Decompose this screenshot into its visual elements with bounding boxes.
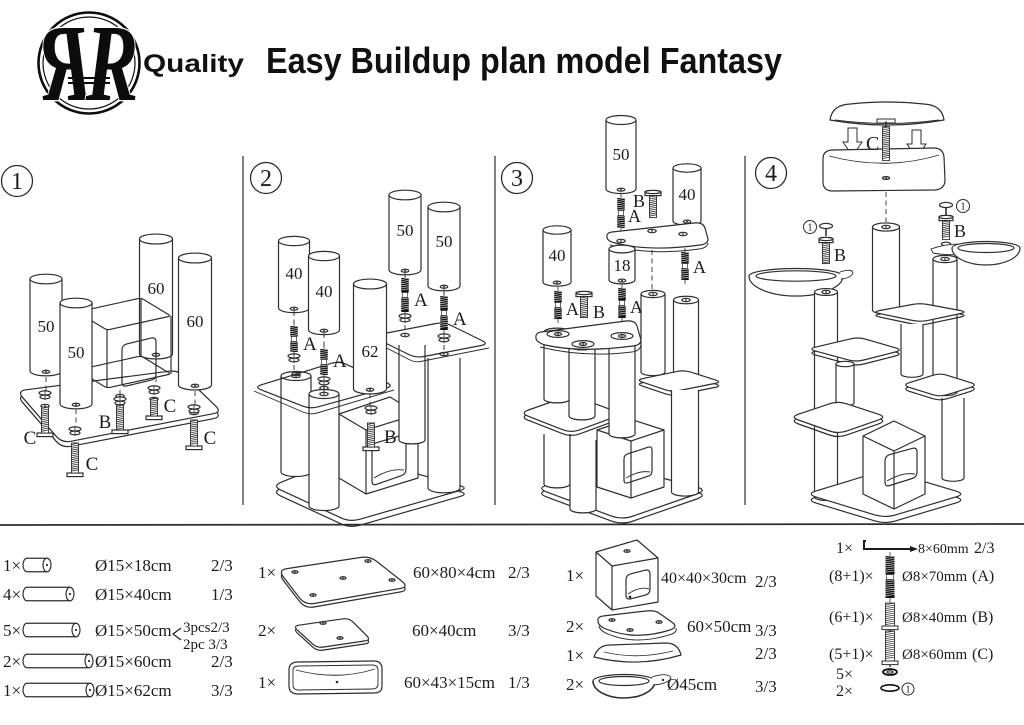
svg-text:C: C: [86, 454, 99, 475]
svg-text:60×80×4cm: 60×80×4cm: [413, 563, 495, 582]
svg-text:40: 40: [316, 282, 333, 301]
svg-text:A: A: [333, 351, 347, 372]
svg-text:5×: 5×: [836, 666, 853, 683]
svg-text:1×: 1×: [3, 556, 21, 575]
svg-text:60×50cm: 60×50cm: [687, 617, 751, 636]
svg-text:A: A: [693, 257, 706, 277]
svg-text:50: 50: [68, 343, 85, 362]
svg-text:B: B: [593, 302, 605, 322]
svg-text:2×: 2×: [258, 621, 276, 640]
svg-text:1: 1: [905, 685, 910, 696]
svg-text:2×: 2×: [566, 675, 584, 694]
svg-text:18: 18: [614, 256, 631, 275]
svg-text:3/3: 3/3: [508, 621, 530, 640]
svg-text:1: 1: [807, 223, 812, 234]
svg-text:60×40cm: 60×40cm: [412, 621, 476, 640]
svg-text:B: B: [954, 221, 966, 241]
svg-text:50: 50: [613, 145, 630, 164]
svg-text:(A): (A): [972, 568, 994, 585]
svg-text:Ø15×18cm: Ø15×18cm: [95, 556, 172, 575]
svg-text:60×43×15cm: 60×43×15cm: [404, 673, 495, 692]
svg-text:1/3: 1/3: [211, 585, 233, 604]
svg-text:60: 60: [148, 279, 165, 298]
svg-text:A: A: [414, 290, 428, 311]
svg-text:A: A: [303, 334, 317, 355]
svg-text:2/3: 2/3: [211, 556, 233, 575]
svg-text:1×: 1×: [3, 681, 21, 700]
svg-text:1: 1: [11, 169, 23, 195]
svg-text:A: A: [566, 299, 579, 319]
svg-text:Ø8×60mm: Ø8×60mm: [902, 647, 967, 663]
svg-text:2×: 2×: [566, 617, 584, 636]
svg-text:1: 1: [960, 202, 965, 213]
svg-text:3pcs2/3: 3pcs2/3: [183, 620, 230, 636]
svg-text:50: 50: [436, 232, 453, 251]
svg-text:1×: 1×: [258, 673, 276, 692]
svg-text:40×40×30cm: 40×40×30cm: [661, 570, 747, 587]
svg-text:4×: 4×: [3, 585, 21, 604]
svg-text:R: R: [85, 2, 139, 124]
svg-text:2/3: 2/3: [755, 644, 777, 663]
svg-text:2×: 2×: [3, 652, 21, 671]
svg-text:40: 40: [549, 246, 566, 265]
svg-text:4: 4: [765, 161, 777, 187]
svg-text:B: B: [834, 245, 846, 265]
svg-text:C: C: [204, 428, 217, 449]
svg-text:2pc 3/3: 2pc 3/3: [183, 637, 228, 653]
svg-text:B: B: [633, 191, 645, 211]
svg-text:5×: 5×: [3, 621, 21, 640]
svg-text:50: 50: [38, 317, 55, 336]
svg-text:Ø8×40mm: Ø8×40mm: [902, 610, 967, 626]
svg-text:Easy Buildup plan model Fantas: Easy Buildup plan model Fantasy: [266, 40, 782, 81]
svg-text:40: 40: [679, 185, 696, 204]
svg-text:Ø15×62cm: Ø15×62cm: [95, 681, 172, 700]
svg-text:1/3: 1/3: [508, 673, 530, 692]
svg-text:C: C: [866, 133, 879, 155]
svg-text:(6+1)×: (6+1)×: [829, 609, 874, 626]
svg-text:Ø45cm: Ø45cm: [667, 675, 717, 694]
svg-text:1×: 1×: [258, 563, 276, 582]
svg-text:B: B: [384, 427, 397, 448]
svg-text:B: B: [99, 412, 112, 433]
svg-text:2/3: 2/3: [508, 563, 530, 582]
svg-text:2: 2: [260, 166, 272, 192]
svg-text:2/3: 2/3: [211, 652, 233, 671]
svg-text:62: 62: [362, 342, 379, 361]
svg-text:2/3: 2/3: [974, 540, 994, 557]
svg-text:Ø15×40cm: Ø15×40cm: [95, 585, 172, 604]
svg-text:(B): (B): [972, 609, 993, 626]
svg-text:60: 60: [187, 312, 204, 331]
svg-text:50: 50: [397, 221, 414, 240]
svg-text:3/3: 3/3: [755, 621, 777, 640]
svg-text:1×: 1×: [566, 566, 584, 585]
svg-text:2×: 2×: [836, 683, 853, 700]
svg-text:C: C: [164, 396, 177, 417]
svg-text:Quality: Quality: [143, 50, 244, 78]
svg-text:Ø8×70mm: Ø8×70mm: [902, 569, 967, 585]
svg-text:3/3: 3/3: [211, 681, 233, 700]
svg-text:Ø15×60cm: Ø15×60cm: [95, 652, 172, 671]
svg-text:Ø15×50cm: Ø15×50cm: [95, 621, 172, 640]
svg-text:C: C: [24, 428, 37, 449]
svg-text:2/3: 2/3: [755, 572, 777, 591]
svg-text:(5+1)×: (5+1)×: [829, 646, 874, 663]
svg-text:A: A: [453, 309, 467, 330]
svg-text:40: 40: [286, 264, 303, 283]
svg-text:1×: 1×: [566, 646, 584, 665]
svg-text:8×60mm: 8×60mm: [918, 542, 969, 557]
svg-text:3/3: 3/3: [755, 677, 777, 696]
svg-text:3: 3: [511, 166, 523, 192]
svg-text:1×: 1×: [836, 540, 853, 557]
svg-text:(C): (C): [972, 646, 993, 663]
svg-text:(8+1)×: (8+1)×: [829, 568, 874, 585]
